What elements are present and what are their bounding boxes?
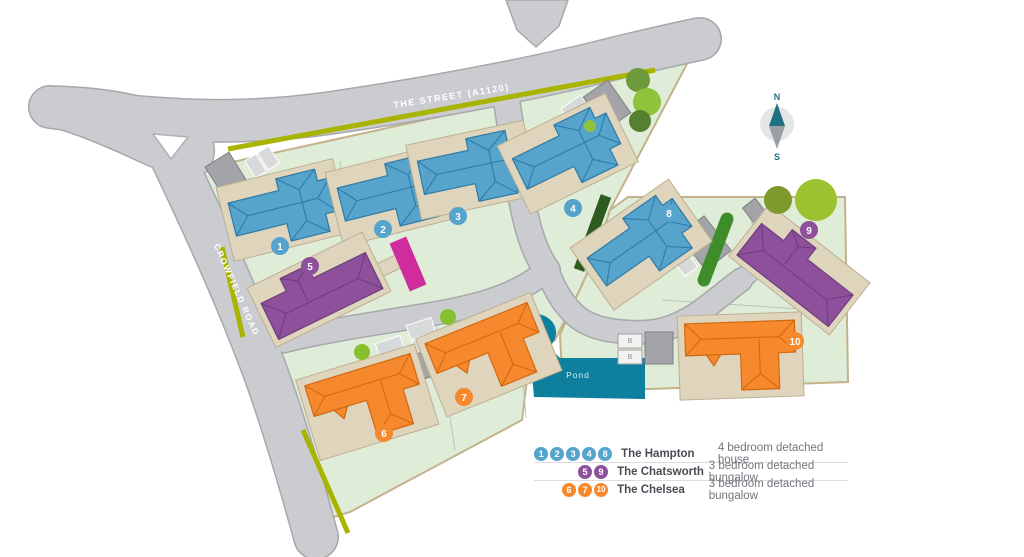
compass: N S	[760, 92, 794, 162]
svg-text:4: 4	[570, 204, 576, 215]
legend-badges-chatsworth: 5 9	[534, 465, 608, 479]
branch-road-north	[506, 0, 568, 47]
svg-text:7: 7	[461, 393, 467, 404]
legend-house-name: The Chelsea	[608, 484, 709, 496]
plot-10-house	[677, 312, 804, 400]
legend-badge: 7	[578, 483, 592, 497]
store-label-1: B	[628, 338, 633, 345]
svg-text:2: 2	[380, 225, 386, 236]
svg-text:6: 6	[381, 429, 387, 440]
legend-badge: 5	[578, 465, 592, 479]
legend-badge: 6	[562, 483, 576, 497]
plot-badge-4: 4	[564, 199, 582, 217]
svg-text:1: 1	[277, 242, 283, 253]
compass-n: N	[774, 92, 781, 102]
svg-text:9: 9	[806, 226, 812, 237]
plot-badge-3: 3	[449, 207, 467, 225]
legend-house-name: The Hampton	[612, 448, 718, 460]
plot-badge-9: 9	[800, 221, 818, 239]
plot-badge-5: 5	[301, 257, 319, 275]
legend-badges-hampton: 1 2 3 4 8	[534, 447, 612, 461]
legend-badge: 10	[594, 483, 608, 497]
legend-badge: 1	[534, 447, 548, 461]
compass-s: S	[774, 152, 780, 162]
legend-badge: 4	[582, 447, 596, 461]
legend-house-name: The Chatsworth	[608, 466, 709, 478]
plot-badge-7: 7	[455, 388, 473, 406]
svg-text:5: 5	[307, 262, 313, 273]
pond-label: Pond	[566, 370, 590, 380]
svg-text:3: 3	[455, 212, 461, 223]
svg-text:10: 10	[789, 337, 801, 348]
plot-badge-6: 6	[375, 424, 393, 442]
site-plan-map: B B	[0, 0, 1024, 557]
legend-badges-chelsea: 6 7 10	[534, 483, 608, 497]
legend-badge: 2	[550, 447, 564, 461]
plot-badge-10: 10	[786, 332, 804, 350]
legend-house-description: 3 bedroom detached bungalow	[709, 478, 848, 502]
legend-badge: 9	[594, 465, 608, 479]
plot-badge-8: 8	[660, 204, 678, 222]
plot-badge-2: 2	[374, 220, 392, 238]
legend: 1 2 3 4 8 The Hampton 4 bedroom detached…	[534, 445, 848, 498]
store-label-2: B	[628, 354, 633, 361]
legend-badge: 8	[598, 447, 612, 461]
legend-badge: 3	[566, 447, 580, 461]
svg-text:8: 8	[666, 209, 672, 220]
plot-badge-1: 1	[271, 237, 289, 255]
legend-row-chelsea: 6 7 10 The Chelsea 3 bedroom detached bu…	[534, 481, 848, 498]
